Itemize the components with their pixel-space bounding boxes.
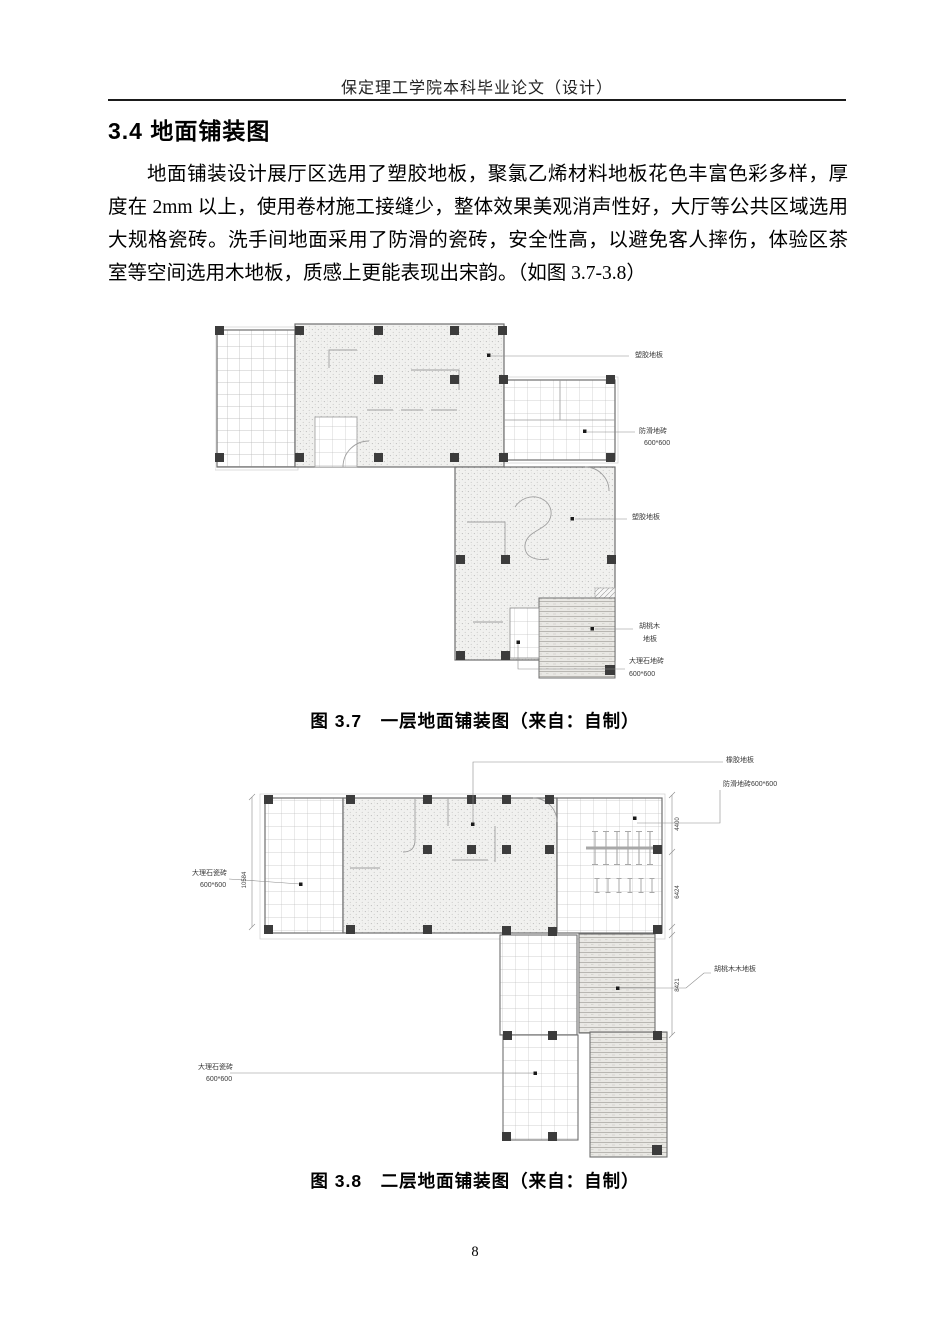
label-walnut-wood-floor: 胡桃木木地板 — [714, 966, 756, 974]
label-walnut-floor-line1: 胡桃木 — [639, 623, 660, 631]
label-marble-tile-bottom-line2: 600*600 — [206, 1076, 232, 1084]
label-plastic-floor-mid: 塑胶地板 — [632, 514, 660, 522]
figure-1-plan-drawing — [215, 322, 695, 697]
figure-2-floor-plan: 10584 4400 6424 8421 橡胶地板 防滑地砖600*600 大理… — [190, 748, 810, 1164]
figure-1-floor-plan: 塑胶地板 防滑地砖 600*600 塑胶地板 胡桃木 地板 大理石地砖 600*… — [215, 322, 695, 697]
figure-2-plan-drawing: 10584 4400 6424 8421 — [190, 748, 810, 1164]
caption-figure-2: 图 3.8 二层地面铺装图（来自：自制） — [0, 1168, 950, 1193]
page-header: 保定理工学院本科毕业论文（设计） — [108, 74, 846, 98]
label-antislip-tile-line1: 防滑地砖 — [639, 428, 667, 436]
label-rubber-floor: 橡胶地板 — [726, 757, 754, 765]
label-plastic-floor-top: 塑胶地板 — [635, 352, 663, 360]
label-marble-tile-line2: 600*600 — [629, 671, 655, 679]
label-marble-tile-left-line2: 600*600 — [200, 882, 226, 890]
label-antislip-tile: 防滑地砖600*600 — [723, 781, 777, 789]
dimension-right-mid: 6424 — [675, 885, 681, 899]
label-marble-tile-line1: 大理石地砖 — [629, 658, 664, 666]
document-page: 保定理工学院本科毕业论文（设计） 3.4 地面铺装图 地面铺装设计展厅区选用了塑… — [0, 0, 950, 1344]
label-marble-tile-bottom-line1: 大理石瓷砖 — [198, 1064, 233, 1072]
dimension-leg: 8421 — [675, 978, 681, 992]
body-paragraph: 地面铺装设计展厅区选用了塑胶地板，聚氯乙烯材料地板花色丰富色彩多样，厚度在 2m… — [108, 158, 848, 290]
page-number: 8 — [0, 1244, 950, 1261]
dimension-right-top: 4400 — [675, 817, 681, 831]
caption-figure-1: 图 3.7 一层地面铺装图（来自：自制） — [0, 708, 950, 733]
section-heading: 3.4 地面铺装图 — [108, 112, 270, 146]
label-antislip-tile-line2: 600*600 — [644, 440, 670, 448]
label-marble-tile-left-line1: 大理石瓷砖 — [192, 870, 227, 878]
label-walnut-floor-line2: 地板 — [643, 636, 657, 644]
dimension-left: 10584 — [242, 871, 248, 888]
header-divider — [108, 99, 846, 101]
